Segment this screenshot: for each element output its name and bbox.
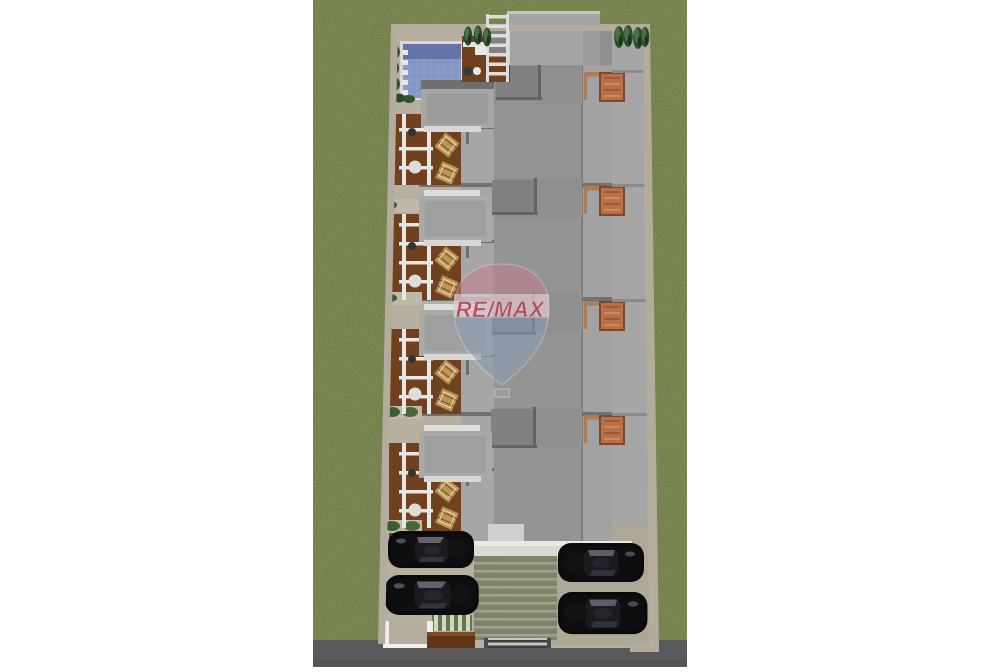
svg-text:RE/MAX: RE/MAX — [456, 297, 545, 322]
